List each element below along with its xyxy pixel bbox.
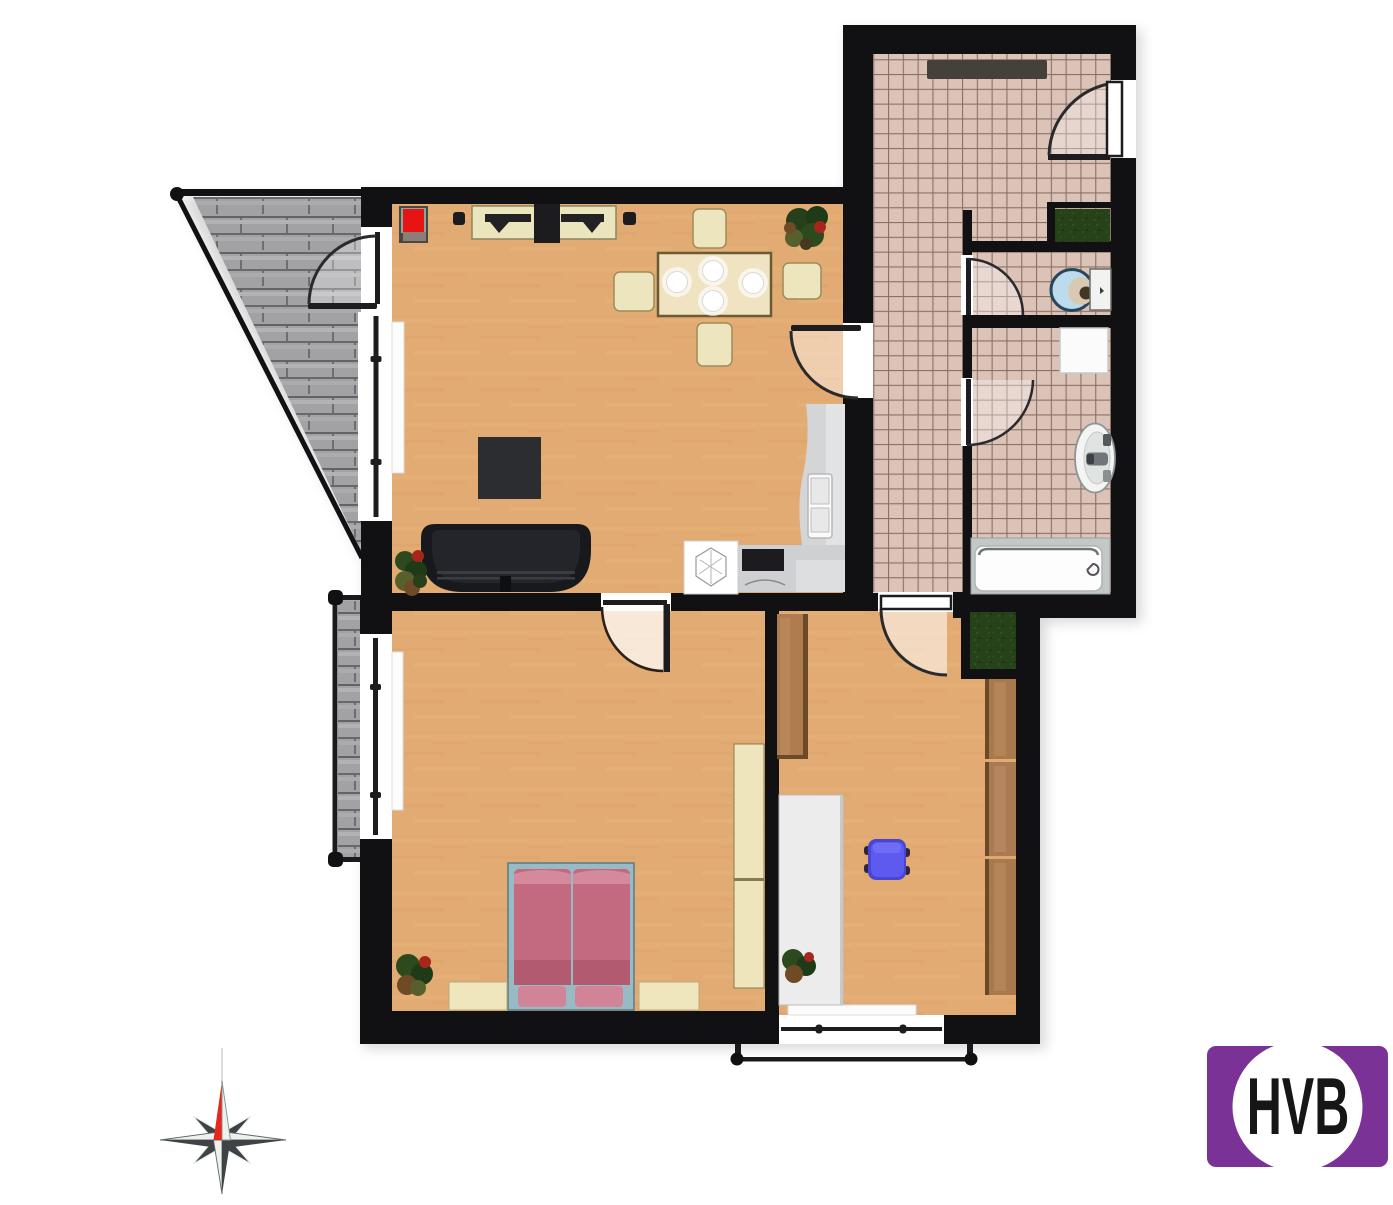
svg-text:HVB: HVB: [1247, 1062, 1350, 1152]
